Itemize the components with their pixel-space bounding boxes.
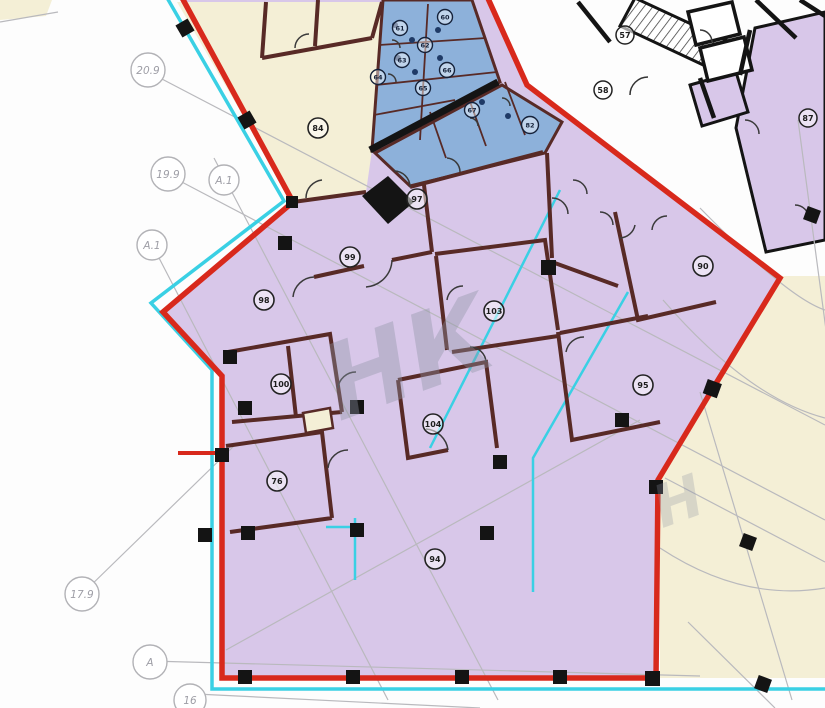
axis-label: А.1 (142, 240, 160, 252)
column (238, 670, 252, 684)
room-label: 61 (393, 21, 408, 36)
room-number: 66 (442, 67, 452, 75)
column (198, 528, 212, 542)
column (241, 526, 255, 540)
room-number: 60 (440, 14, 450, 22)
room-number: 84 (312, 124, 324, 133)
column (480, 526, 494, 540)
column (553, 670, 567, 684)
column (645, 671, 660, 686)
room-label: 57 (616, 26, 634, 44)
fixture-dot (505, 113, 511, 119)
axis-bubble: 20.9 (131, 53, 165, 87)
room-label: 67 (465, 103, 480, 118)
column (223, 350, 237, 364)
room-number: 62 (420, 42, 429, 50)
floor-plan-svg: НК Н 97 99 98 100 76 104 103 (0, 0, 825, 708)
room-label: 98 (254, 290, 274, 310)
column (350, 523, 364, 537)
column (541, 260, 556, 275)
axis-bubble: А (133, 645, 167, 679)
room-label: 76 (267, 471, 287, 491)
room-number: 100 (273, 380, 290, 389)
room-label: 82 (522, 117, 539, 134)
room-label: 64 (371, 70, 386, 85)
room-number: 95 (637, 381, 649, 390)
room-number: 65 (418, 85, 428, 93)
room-label: 100 (271, 374, 291, 394)
room-number: 104 (425, 420, 442, 429)
room-number: 99 (344, 253, 356, 262)
axis-label: 16 (183, 695, 197, 707)
axis-bubble: А.1 (209, 165, 239, 195)
room-number: 58 (597, 86, 609, 95)
room-number: 76 (271, 477, 283, 486)
fixture-dot (435, 27, 441, 33)
room-label: 97 (407, 189, 427, 209)
room-number: 97 (411, 195, 422, 204)
room-number: 82 (525, 122, 534, 130)
room-number: 94 (429, 555, 441, 564)
column (215, 448, 229, 462)
room-label: 95 (633, 375, 653, 395)
column (238, 401, 252, 415)
column (278, 236, 292, 250)
room-number: 90 (697, 262, 709, 271)
axis-label: 19.9 (156, 169, 180, 181)
column (455, 670, 469, 684)
fixture-dot (412, 69, 418, 75)
room-number: 67 (467, 107, 476, 115)
room-number: 57 (619, 31, 630, 40)
room-label: 94 (425, 549, 445, 569)
axis-label: А (145, 657, 153, 669)
fixture-dot (479, 99, 485, 105)
room-label: 60 (438, 10, 453, 25)
axis-bubble: А.1 (137, 230, 167, 260)
column (615, 413, 629, 427)
fixture-dot (409, 37, 415, 43)
column (286, 196, 298, 208)
column (493, 455, 507, 469)
room-label: 66 (440, 63, 455, 78)
column (346, 670, 360, 684)
room-number: 63 (397, 57, 406, 65)
room-label: 62 (418, 38, 433, 53)
floor-plan-stage: НК Н 97 99 98 100 76 104 103 (0, 0, 825, 708)
room-number: 87 (802, 114, 813, 123)
room-number: 61 (395, 25, 405, 33)
fixture-dot (437, 55, 443, 61)
room-label: 103 (484, 301, 504, 321)
room-label: 65 (416, 81, 431, 96)
axis-label: 17.9 (70, 589, 94, 601)
axis-label: 20.9 (136, 65, 160, 77)
room-label-outside: 87 (799, 109, 817, 127)
room-label: 90 (693, 256, 713, 276)
room-label: 58 (594, 81, 612, 99)
axis-bubble: 17.9 (65, 577, 99, 611)
room-number: 98 (258, 296, 270, 305)
room-number: 64 (373, 74, 383, 82)
room-label-yellow: 84 (308, 118, 328, 138)
room-label: 104 (423, 414, 443, 434)
room-number: 103 (486, 307, 503, 316)
room-label: 99 (340, 247, 360, 267)
axis-label: А.1 (214, 175, 232, 187)
door-niche (303, 408, 333, 433)
axis-bubble: 19.9 (151, 157, 185, 191)
room-label: 63 (395, 53, 410, 68)
